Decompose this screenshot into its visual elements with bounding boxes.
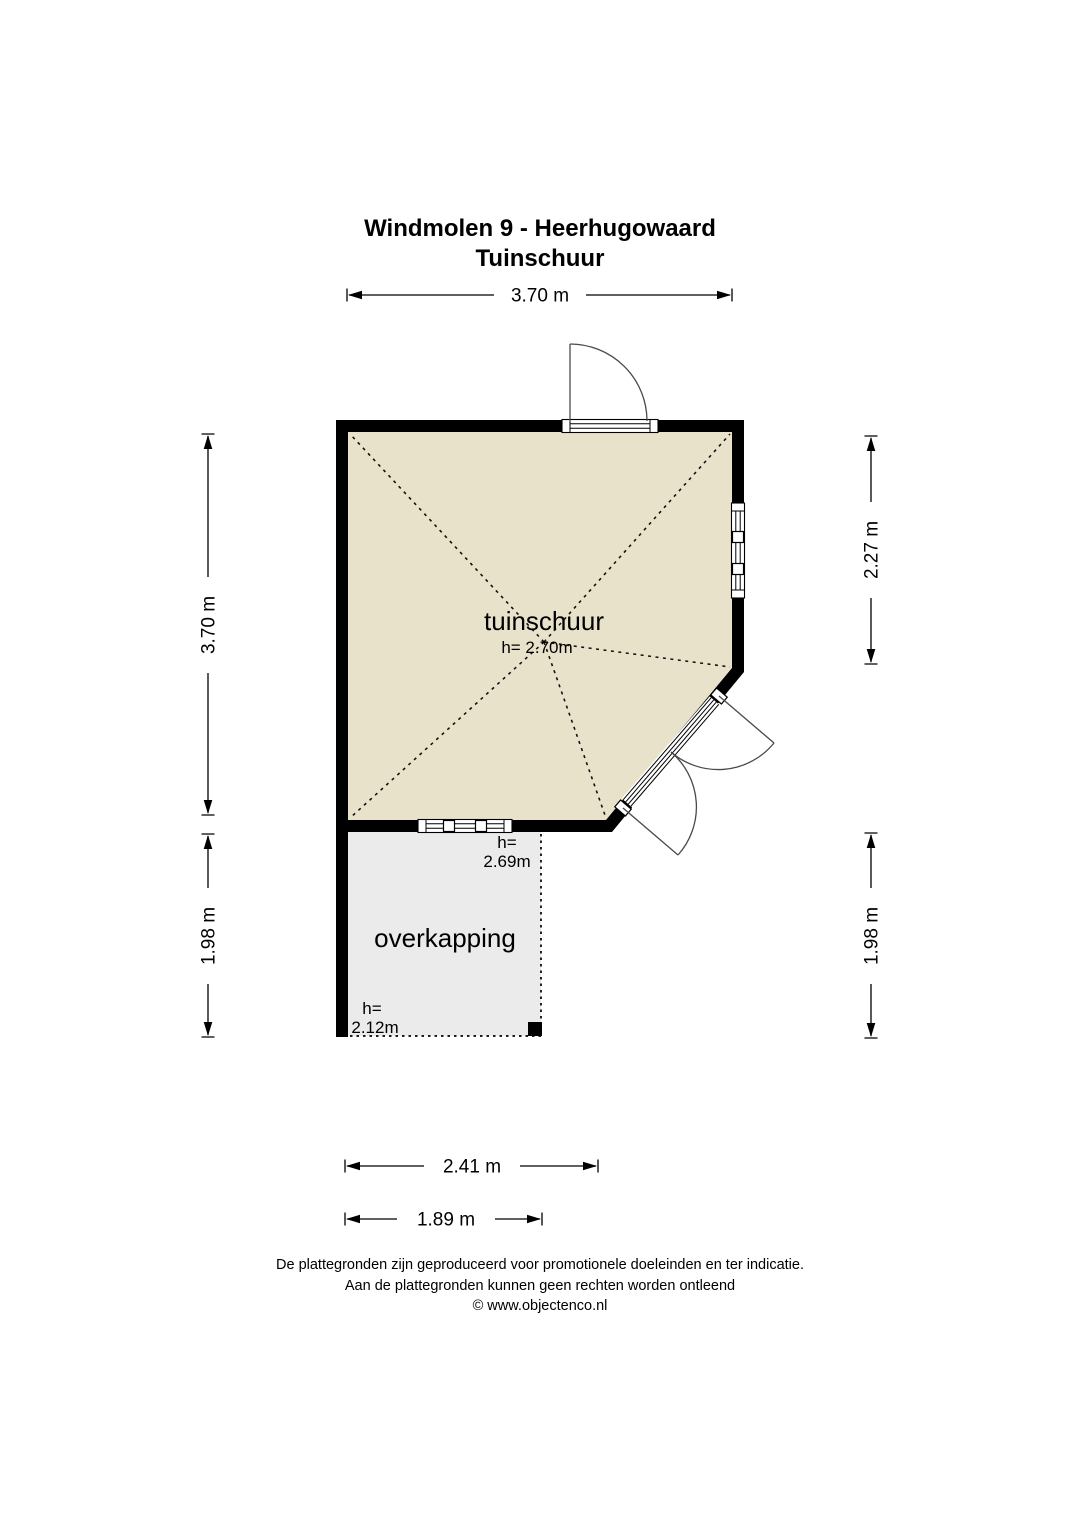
door-top-arc [570, 344, 647, 421]
arrow-up-icon [867, 834, 876, 848]
label-overkapping-h212-2: 2.12m [351, 1018, 398, 1037]
arrow-up-icon [867, 437, 876, 451]
dimension-bottom-overkapping-inner-width-label: 1.89 m [417, 1210, 475, 1231]
wall-left-overkapping [336, 832, 348, 1037]
dimension-bottom-overkapping-inner-width: 1.89 m [345, 1210, 542, 1231]
floor-plan-canvas: Windmolen 9 - Heerhugowaard Tuinschuur [0, 0, 1080, 1527]
door-top-swing [570, 344, 647, 421]
dimension-right-overkapping-height: 1.98 m [862, 833, 883, 1038]
dimension-left-total-height: 3.70 m [199, 434, 220, 815]
label-overkapping-h269-1: h= [497, 833, 516, 852]
footer-line1: De plattegronden zijn geproduceerd voor … [276, 1257, 804, 1273]
arrow-down-icon [867, 1023, 876, 1037]
arrow-left-icon [346, 1215, 360, 1224]
dimension-right-wall-height-label: 2.27 m [862, 521, 883, 579]
label-tuinschuur-height: h= 2.70m [501, 638, 572, 657]
dimension-top-width: 3.70 m [347, 286, 732, 307]
door-chamfer-arc-bottom [671, 752, 696, 855]
arrow-left-icon [346, 1162, 360, 1171]
arrow-down-icon [867, 649, 876, 663]
overkapping-post [528, 1022, 542, 1036]
footer-line2: Aan de plattegronden kunnen geen rechten… [345, 1278, 735, 1294]
arrow-down-icon [204, 800, 213, 814]
plan-title-line2: Tuinschuur [476, 245, 605, 272]
plan-title-line1: Windmolen 9 - Heerhugowaard [364, 215, 716, 242]
window-bottom-frame [418, 820, 512, 833]
window-right-mullion1 [733, 532, 744, 543]
door-top-opening [562, 420, 658, 433]
dimension-top-width-label: 3.70 m [511, 286, 569, 307]
footer-disclaimer: De plattegronden zijn geproduceerd voor … [276, 1257, 804, 1314]
window-right-frame [732, 503, 745, 598]
window-right-mullion2 [733, 564, 744, 575]
window-bottom [418, 820, 512, 833]
dimension-right-overkapping-height-label: 1.98 m [862, 907, 883, 965]
label-overkapping-h269-2: 2.69m [483, 852, 530, 871]
arrow-right-icon [717, 291, 731, 300]
door-chamfer-leaf-top [719, 696, 774, 743]
window-bottom-mullion1 [444, 821, 455, 832]
window-bottom-mullion2 [476, 821, 487, 832]
door-top [562, 344, 658, 433]
arrow-right-icon [583, 1162, 597, 1171]
door-chamfer-arc-top [671, 743, 774, 770]
dimension-left-total-height-label: 3.70 m [199, 596, 220, 654]
door-chamfer-leaf-bottom [623, 808, 678, 855]
label-tuinschuur: tuinschuur [484, 606, 604, 636]
dimension-bottom-overkapping-width: 2.41 m [345, 1157, 598, 1178]
dimension-left-overkapping-height: 1.98 m [199, 834, 220, 1037]
label-overkapping-h212-1: h= [362, 999, 381, 1018]
window-right [732, 503, 745, 598]
label-overkapping: overkapping [374, 923, 516, 953]
footer-copyright: © www.objectenco.nl [473, 1298, 608, 1314]
arrow-up-icon [204, 435, 213, 449]
floor-plan-page: Windmolen 9 - Heerhugowaard Tuinschuur [0, 0, 1080, 1527]
arrow-left-icon [348, 291, 362, 300]
dimension-bottom-overkapping-width-label: 2.41 m [443, 1157, 501, 1178]
arrow-up-icon [204, 835, 213, 849]
arrow-right-icon [527, 1215, 541, 1224]
arrow-down-icon [204, 1022, 213, 1036]
dimension-right-wall-height: 2.27 m [862, 436, 883, 664]
dimension-left-overkapping-height-label: 1.98 m [199, 907, 220, 965]
